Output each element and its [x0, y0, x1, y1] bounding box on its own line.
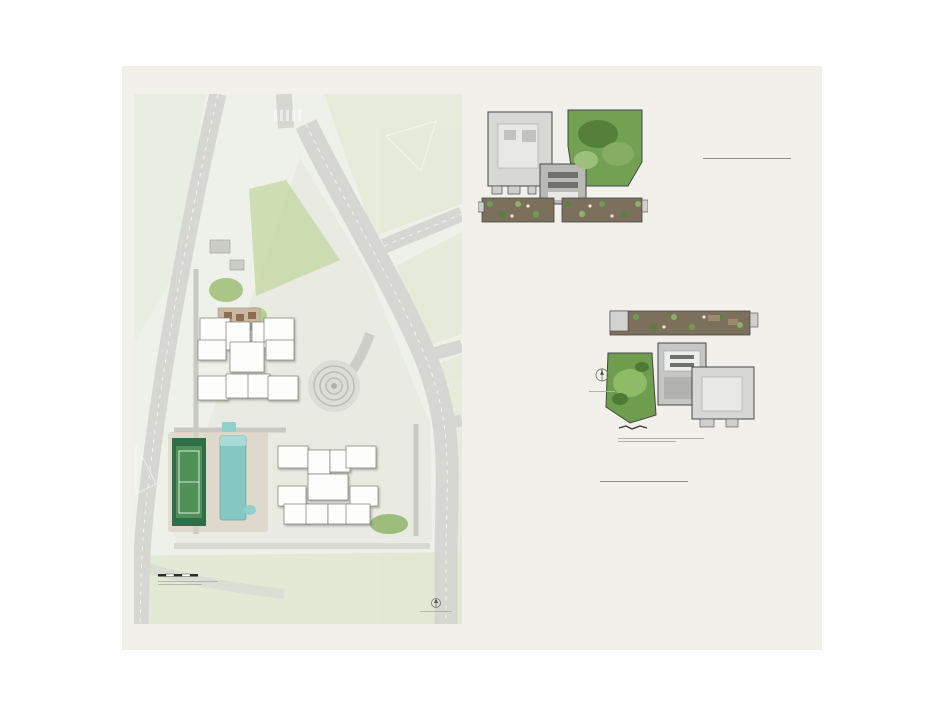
mini-scale-icon: [618, 424, 648, 431]
plan-205-footnote: [618, 418, 704, 442]
brochure-page: [0, 0, 943, 717]
roof-terrace-divider: [703, 158, 791, 159]
spa-pool: [222, 422, 236, 432]
footnote-line-1: [618, 438, 704, 439]
arrival-plaza: [308, 360, 360, 412]
block-207-footprint: [198, 318, 298, 400]
roof-plan-block-207: [478, 106, 648, 236]
site-plan: [134, 94, 462, 624]
site-plan-board: [122, 66, 822, 650]
north-arrow-205: [587, 366, 617, 392]
compass-icon: [593, 366, 611, 384]
north-note-line: [589, 391, 615, 392]
facilities-deck-divider: [600, 481, 688, 482]
footnote-line-2: [618, 441, 676, 442]
roof-plan-block-205: [600, 295, 765, 432]
lap-pool: [220, 436, 246, 520]
splash-pool: [244, 505, 256, 515]
tennis-court: [172, 438, 206, 526]
